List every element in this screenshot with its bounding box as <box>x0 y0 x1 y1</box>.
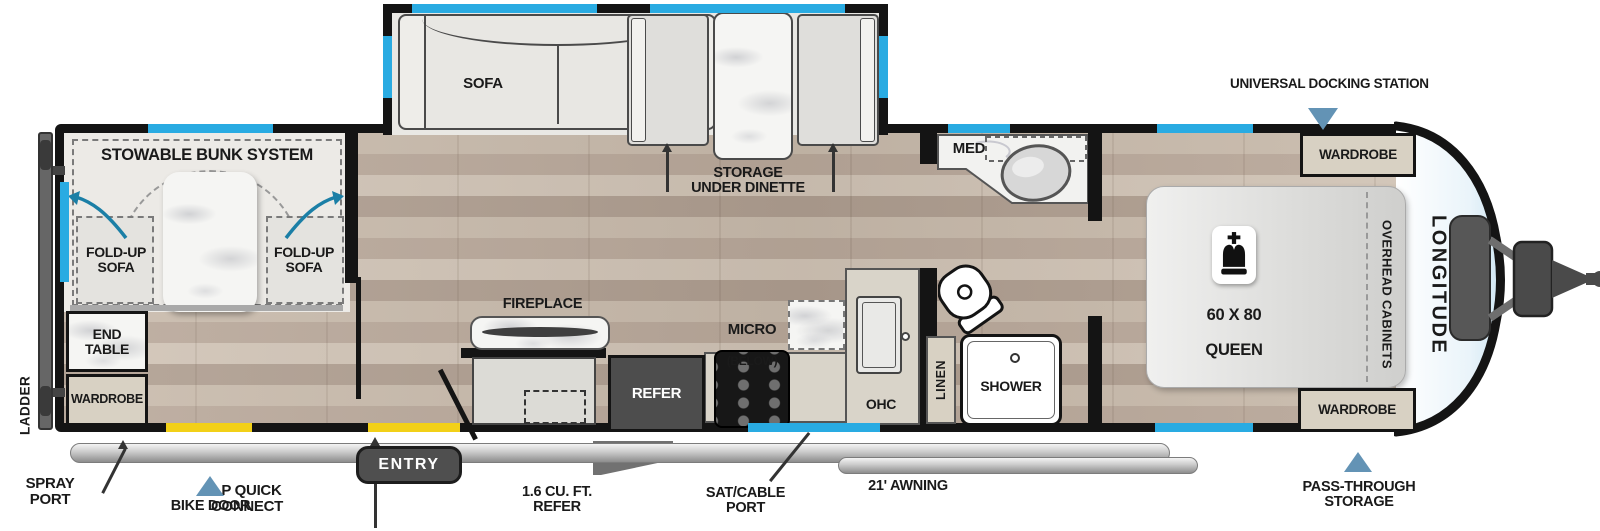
bedroom-wall-lower <box>1088 316 1102 423</box>
tongue-jack <box>1514 242 1552 316</box>
window <box>879 36 888 98</box>
crown-icon <box>1217 231 1251 279</box>
hitch-tongue <box>1552 260 1588 298</box>
sofa-label: SOFA <box>448 76 518 92</box>
linen-cabinet: LINEN <box>926 336 956 424</box>
sat-cable-label: SAT/CABLE PORT <box>698 486 793 516</box>
window <box>1155 423 1253 432</box>
entry-label: ENTRY <box>378 456 439 474</box>
spray-port-label: SPRAY PORT <box>0 476 100 508</box>
overhead-cabinet-edge <box>1366 192 1368 382</box>
storage-under-dinette-label: STORAGE UNDER DINETTE <box>655 166 841 196</box>
overhead-cabinets-label: OVERHEAD CABINETS <box>1372 210 1402 378</box>
bedroom-wall-upper <box>1088 133 1102 221</box>
bath-wall-top-stub <box>920 133 937 164</box>
floorplan-canvas: LONGITUDE STOWABLE BUNK SYSTEM FOLD-UP S… <box>0 0 1600 531</box>
wardrobe-front-bottom-label: WARDROBE <box>1318 403 1396 417</box>
fold-up-sofa-right-label: FOLD-UP SOFA <box>267 245 341 274</box>
exterior-refer-access <box>524 390 586 424</box>
dinette-pointer-left-arrow <box>662 143 672 152</box>
shower-label: SHOWER <box>963 379 1059 394</box>
refrigerator: REFER <box>608 355 705 432</box>
window <box>948 124 1010 133</box>
refer-label: REFER <box>632 386 681 402</box>
universal-docking-marker <box>1308 108 1338 130</box>
window <box>148 124 273 133</box>
ladder-bracket <box>53 166 65 175</box>
shower: SHOWER <box>960 334 1062 426</box>
spray-port-pointer-arrow <box>118 440 128 449</box>
ladder-label: LADDER <box>12 368 38 442</box>
shower-drain-icon <box>1010 353 1020 363</box>
fold-arrow-right-icon <box>282 190 346 242</box>
window <box>748 423 880 432</box>
faucet-icon <box>901 332 910 341</box>
window <box>412 4 597 13</box>
micro-line1: MICRO <box>728 321 777 338</box>
end-table-label: END TABLE <box>85 327 129 356</box>
hitch-a-frame <box>1490 240 1600 318</box>
pass-through-label: PASS-THROUGH STORAGE <box>1288 480 1430 510</box>
bunk-bed <box>163 172 257 312</box>
universal-docking-label: UNIVERSAL DOCKING STATION <box>1230 77 1420 91</box>
ladder-grip <box>40 140 51 170</box>
fold-arrow-left-icon <box>66 190 130 242</box>
window <box>60 182 69 282</box>
micro-line2: (BELOW) <box>727 354 778 368</box>
dinette-bench <box>627 14 709 146</box>
entry-door-opening <box>368 423 460 432</box>
wardrobe-front-top-label: WARDROBE <box>1319 148 1397 162</box>
awning-roller <box>838 457 1198 474</box>
dinette-bench <box>797 14 879 146</box>
dinette-table <box>713 12 793 160</box>
toilet-icon <box>938 262 1004 340</box>
sofa-cushion-divider <box>557 44 559 124</box>
awning-label: 21' AWNING <box>858 479 958 494</box>
med-label: MED <box>946 141 992 157</box>
propane-cover <box>1450 216 1490 340</box>
window <box>650 4 845 13</box>
kitchen-sink <box>856 296 902 374</box>
bike-door-opening <box>166 423 252 432</box>
wardrobe-rear: WARDROBE <box>66 374 148 426</box>
bike-door-label: BIKE DOOR <box>158 499 263 514</box>
micro-label: MICRO (BELOW) <box>704 306 800 369</box>
ladder-bracket <box>53 388 65 397</box>
bed-size: 60 X 80 <box>1207 306 1262 324</box>
wardrobe-rear-label: WARDROBE <box>71 393 143 406</box>
fold-up-sofa-left-label: FOLD-UP SOFA <box>79 245 153 274</box>
bunk-wall <box>345 133 358 283</box>
end-table: END TABLE <box>66 311 148 372</box>
fireplace-label: FIREPLACE <box>475 297 610 312</box>
bunk-room-title: STOWABLE BUNK SYSTEM <box>77 147 337 164</box>
window <box>1157 124 1253 133</box>
bunk-pocket-door <box>356 277 361 399</box>
bed-type: QUEEN <box>1205 341 1262 359</box>
entry-badge: ENTRY <box>356 446 462 484</box>
bed-crown-plate <box>1212 226 1256 284</box>
brand-logo: LONGITUDE <box>1424 204 1452 366</box>
lp-pointer-arrow <box>370 437 380 446</box>
ladder-grip <box>40 386 51 416</box>
dinette-pointer-right-arrow <box>828 143 838 152</box>
bike-door-marker <box>196 476 224 496</box>
pass-through-marker <box>1344 452 1372 472</box>
sofa-armrest <box>400 16 426 128</box>
window <box>383 36 392 98</box>
wardrobe-front-top: WARDROBE <box>1300 133 1416 177</box>
wardrobe-front-bottom: WARDROBE <box>1298 388 1416 432</box>
exterior-refer-label: 1.6 CU. FT. REFER <box>512 485 602 515</box>
bed-size-label: 60 X 80 QUEEN <box>1173 290 1295 359</box>
tv-icon <box>482 327 598 337</box>
ohc-label: OHC <box>846 397 916 412</box>
